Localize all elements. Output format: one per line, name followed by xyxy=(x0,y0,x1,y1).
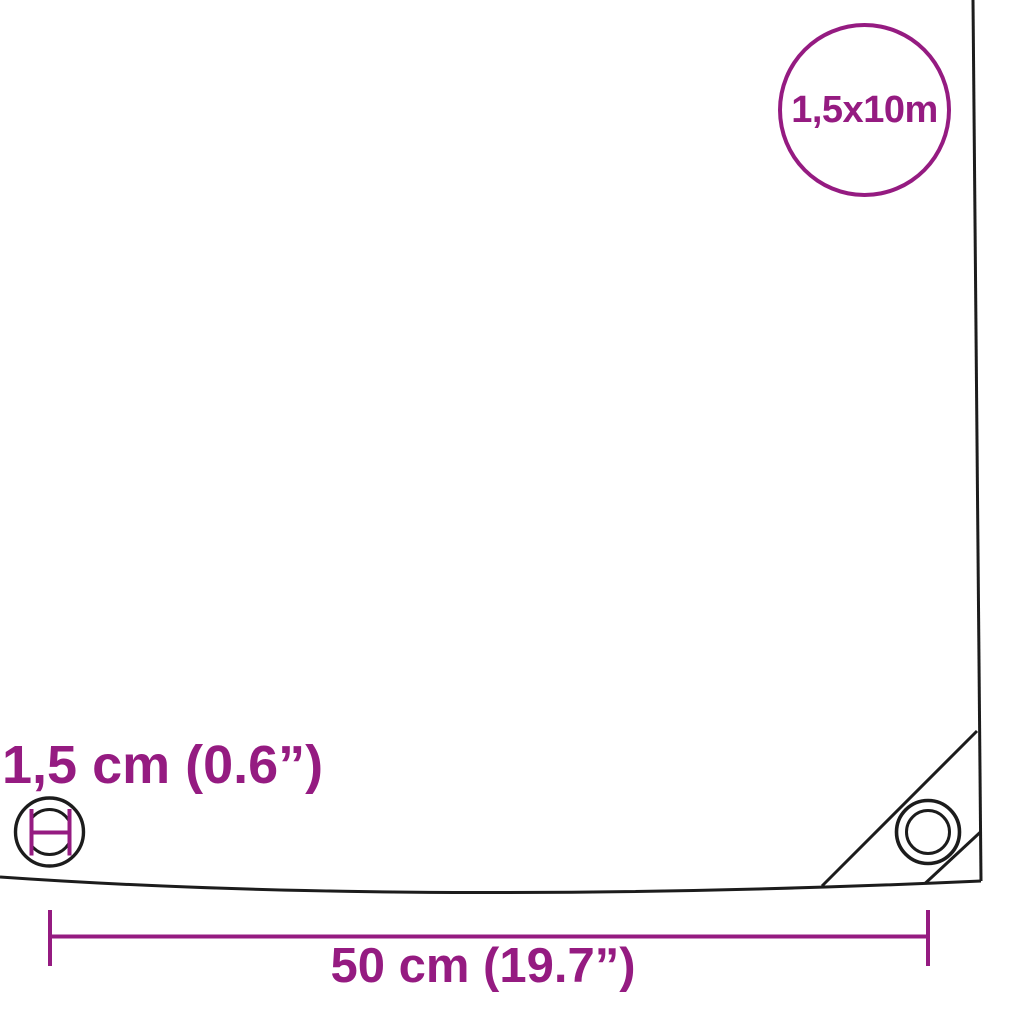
grommet-diameter-icon xyxy=(16,798,84,866)
corner-eyelet-inner-ring xyxy=(907,811,950,854)
corner-eyelet-icon xyxy=(897,801,960,864)
corner-chamfer-line xyxy=(925,832,981,884)
corner-reinforcement-seam xyxy=(822,731,977,886)
eyelet-diameter-label: 1,5 cm (0.6”) xyxy=(2,734,323,796)
tarpaulin-dimension-diagram: 1,5x10m 1,5 cm (0.6”) 50 cm (19.7”) xyxy=(0,0,1024,1024)
tarp-right-edge xyxy=(973,0,981,881)
size-badge: 1,5x10m xyxy=(778,23,951,197)
size-badge-label: 1,5x10m xyxy=(791,89,938,132)
tarp-bottom-edge xyxy=(0,877,981,893)
eyelet-spacing-label: 50 cm (19.7”) xyxy=(0,938,966,994)
